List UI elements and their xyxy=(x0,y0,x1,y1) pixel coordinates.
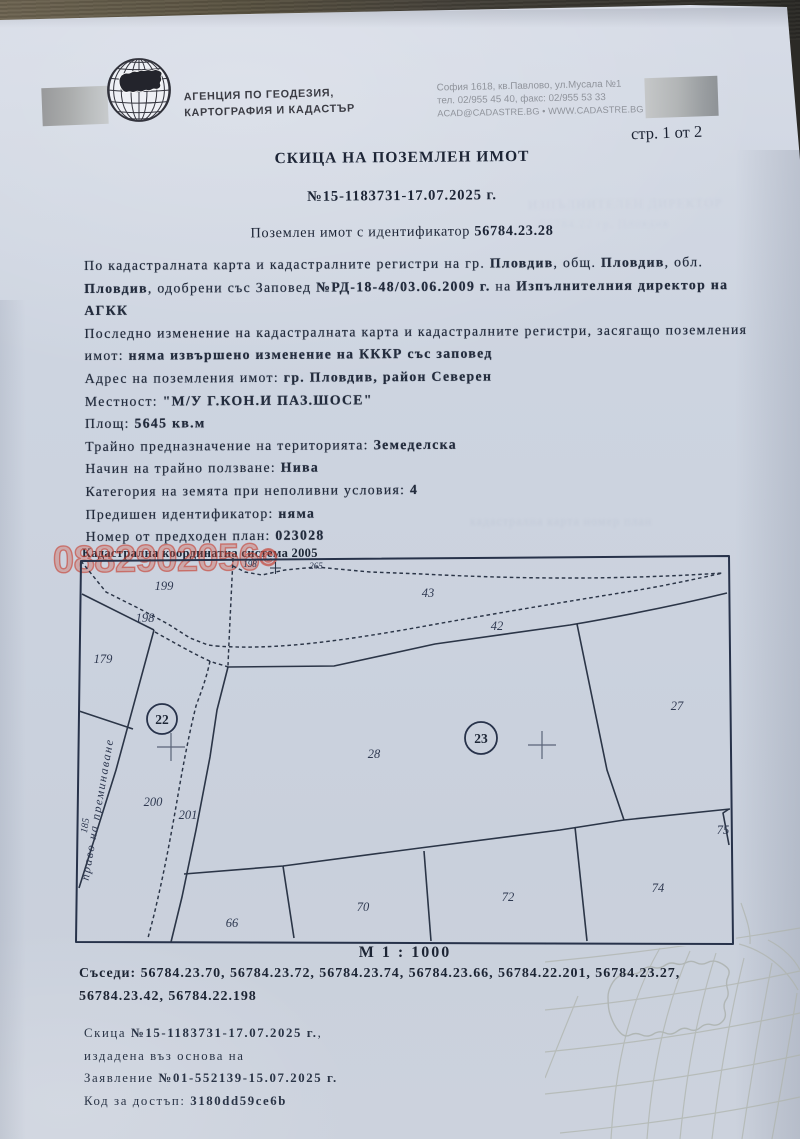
svg-text:43: 43 xyxy=(422,586,435,600)
svg-text:74: 74 xyxy=(652,881,665,895)
svg-text:66: 66 xyxy=(226,916,239,930)
svg-text:200: 200 xyxy=(144,795,164,809)
svg-text:201: 201 xyxy=(179,808,198,822)
svg-text:75: 75 xyxy=(717,823,730,837)
svg-text:42: 42 xyxy=(491,619,504,633)
svg-text:199: 199 xyxy=(155,579,175,593)
svg-text:28: 28 xyxy=(368,747,381,761)
svg-text:198: 198 xyxy=(243,559,257,569)
svg-text:198: 198 xyxy=(136,611,156,625)
svg-text:70: 70 xyxy=(357,900,370,914)
svg-text:185: 185 xyxy=(79,817,92,834)
svg-text:179: 179 xyxy=(94,652,114,666)
svg-text:23: 23 xyxy=(474,731,488,746)
svg-text:27: 27 xyxy=(671,699,684,713)
svg-text:265: 265 xyxy=(309,561,323,571)
svg-text:72: 72 xyxy=(502,890,515,904)
svg-text:право на преминаване: право на преминаване xyxy=(78,737,117,881)
svg-text:22: 22 xyxy=(155,712,169,727)
